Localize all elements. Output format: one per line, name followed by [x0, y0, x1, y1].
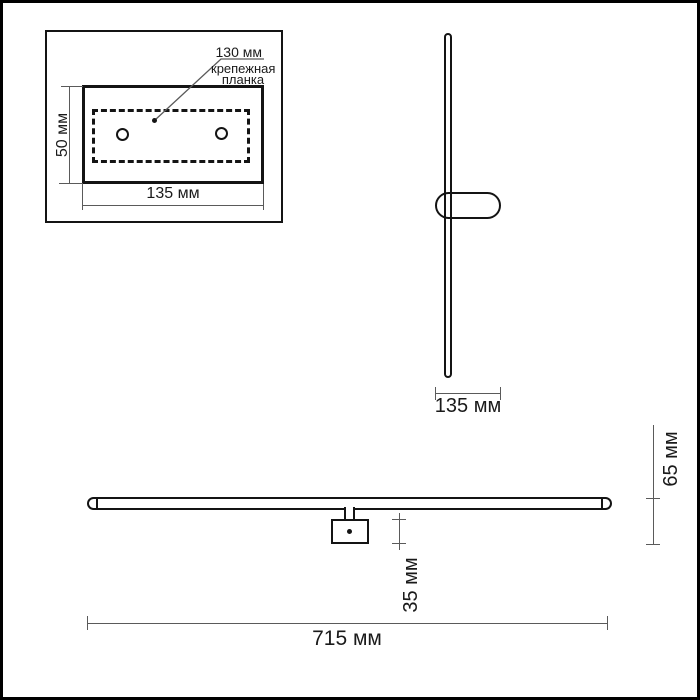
image-border-frame: [0, 0, 700, 700]
technical-drawing-canvas: 130 мм крепежная планка 50 мм 135 мм 135…: [0, 0, 700, 700]
